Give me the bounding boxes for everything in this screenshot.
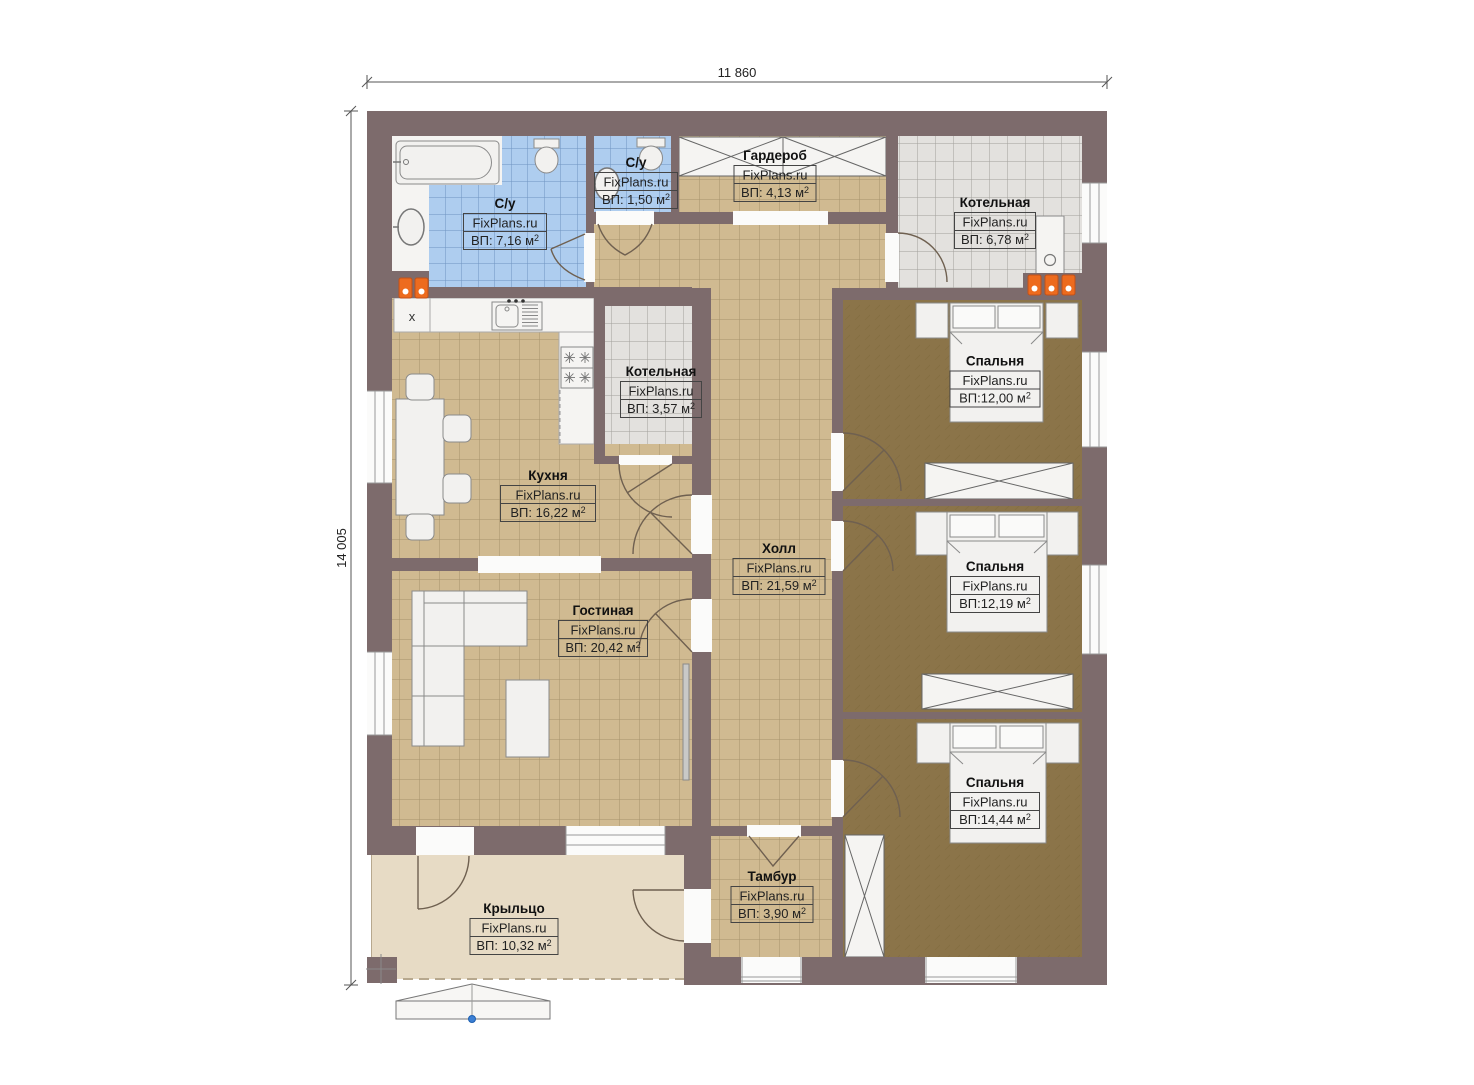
svg-text:Крыльцо: Крыльцо [483, 901, 544, 916]
svg-text:FixPlans.ru: FixPlans.ru [481, 921, 546, 936]
svg-text:FixPlans.ru: FixPlans.ru [746, 561, 811, 576]
svg-text:Спальня: Спальня [966, 775, 1024, 790]
svg-text:FixPlans.ru: FixPlans.ru [962, 373, 1027, 388]
svg-text:Кухня: Кухня [528, 468, 567, 483]
svg-text:ВП:12,19 м2: ВП:12,19 м2 [959, 596, 1031, 611]
svg-text:ВП: 1,50 м2: ВП: 1,50 м2 [602, 192, 670, 207]
svg-text:ВП: 3,90 м2: ВП: 3,90 м2 [738, 906, 806, 921]
svg-text:11 860: 11 860 [718, 65, 757, 80]
svg-text:FixPlans.ru: FixPlans.ru [742, 168, 807, 183]
svg-text:С/у: С/у [494, 196, 516, 211]
svg-text:ВП: 21,59 м2: ВП: 21,59 м2 [741, 578, 816, 593]
svg-text:ВП: 10,32 м2: ВП: 10,32 м2 [476, 938, 551, 953]
svg-text:FixPlans.ru: FixPlans.ru [962, 215, 1027, 230]
svg-text:ВП: 4,13 м2: ВП: 4,13 м2 [741, 185, 809, 200]
svg-text:Котельная: Котельная [626, 364, 697, 379]
svg-text:ВП: 16,22 м2: ВП: 16,22 м2 [510, 505, 585, 520]
svg-text:Тамбур: Тамбур [748, 869, 797, 884]
svg-text:FixPlans.ru: FixPlans.ru [628, 384, 693, 399]
svg-text:ВП:14,44 м2: ВП:14,44 м2 [959, 812, 1031, 827]
svg-text:FixPlans.ru: FixPlans.ru [962, 579, 1027, 594]
svg-text:ВП: 20,42 м2: ВП: 20,42 м2 [565, 640, 640, 655]
svg-text:ВП: 7,16 м2: ВП: 7,16 м2 [471, 233, 539, 248]
svg-text:FixPlans.ru: FixPlans.ru [570, 623, 635, 638]
svg-text:Спальня: Спальня [966, 559, 1024, 574]
svg-text:ВП: 6,78 м2: ВП: 6,78 м2 [961, 232, 1029, 247]
svg-text:Котельная: Котельная [960, 195, 1031, 210]
svg-text:x: x [409, 309, 416, 324]
svg-text:FixPlans.ru: FixPlans.ru [962, 795, 1027, 810]
svg-text:FixPlans.ru: FixPlans.ru [603, 175, 668, 190]
svg-text:Гардероб: Гардероб [743, 148, 807, 163]
svg-text:Гостиная: Гостиная [572, 603, 633, 618]
svg-text:FixPlans.ru: FixPlans.ru [515, 488, 580, 503]
svg-text:Спальня: Спальня [966, 354, 1024, 369]
svg-text:FixPlans.ru: FixPlans.ru [739, 889, 804, 904]
svg-text:14 005: 14 005 [334, 528, 349, 568]
svg-text:FixPlans.ru: FixPlans.ru [472, 216, 537, 231]
svg-text:С/у: С/у [625, 155, 647, 170]
svg-text:ВП:12,00 м2: ВП:12,00 м2 [959, 391, 1031, 406]
svg-text:Холл: Холл [762, 541, 796, 556]
svg-text:ВП: 3,57 м2: ВП: 3,57 м2 [627, 401, 695, 416]
